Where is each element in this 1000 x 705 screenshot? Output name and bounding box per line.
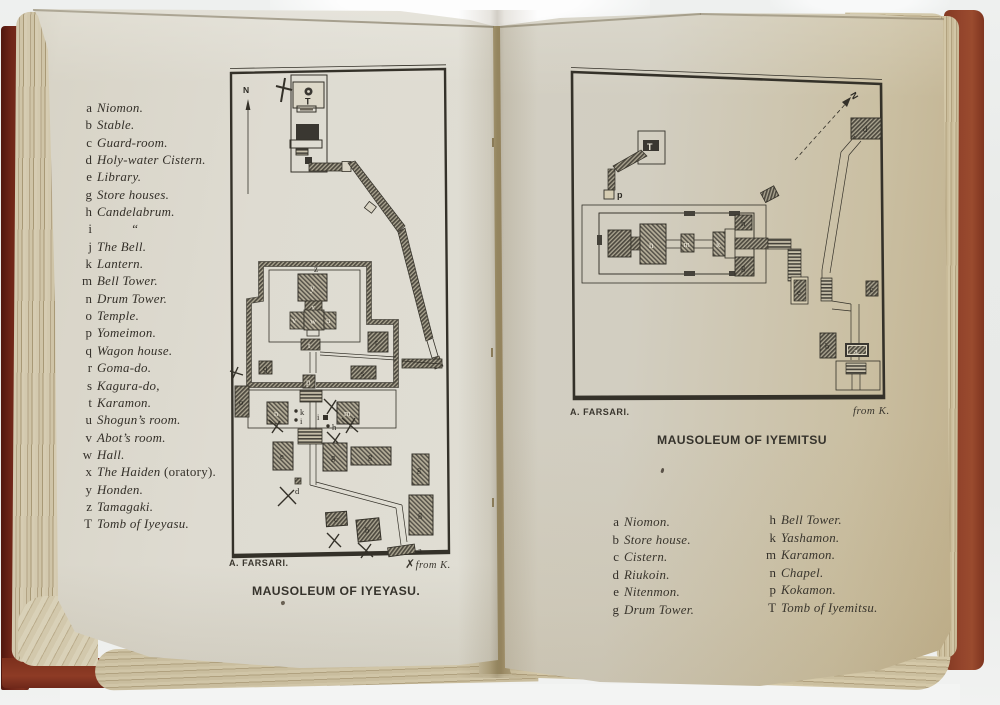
svg-text:p: p (617, 190, 623, 200)
svg-text:h: h (332, 422, 337, 432)
svg-text:a: a (854, 346, 858, 356)
svg-text:N: N (848, 90, 860, 101)
svg-text:z: z (314, 264, 318, 274)
svg-text:N: N (243, 85, 249, 95)
svg-text:o: o (239, 397, 243, 407)
svg-text:b: b (365, 525, 369, 535)
svg-text:r: r (375, 337, 378, 347)
svg-text:y: y (310, 283, 315, 293)
svg-text:n: n (649, 240, 654, 250)
svg-text:e: e (797, 287, 801, 297)
svg-text:i: i (317, 412, 320, 422)
svg-text:p: p (306, 377, 311, 387)
svg-text:d: d (295, 486, 300, 496)
svg-text:m: m (344, 408, 351, 418)
svg-text:i: i (300, 416, 303, 426)
svg-text:b: b (825, 341, 829, 351)
svg-text:c: c (870, 284, 874, 294)
svg-text:T: T (647, 142, 653, 152)
svg-text:a: a (418, 545, 422, 555)
svg-text:w: w (310, 316, 317, 326)
svg-text:T: T (305, 97, 311, 107)
svg-text:e: e (280, 451, 284, 461)
svg-text:c: c (334, 514, 338, 524)
svg-text:s: s (361, 368, 364, 378)
svg-text:m: m (684, 240, 691, 249)
